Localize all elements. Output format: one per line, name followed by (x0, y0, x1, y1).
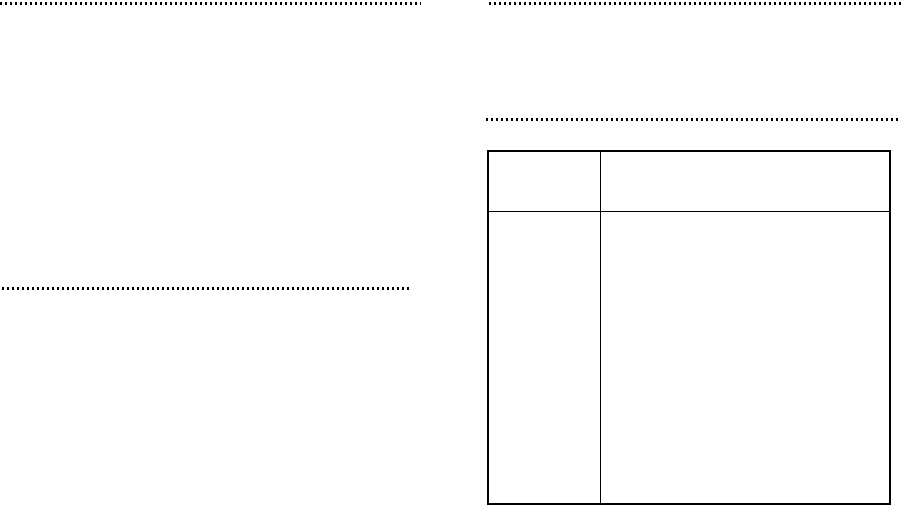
dotted-rule-mid-right (486, 118, 899, 121)
dotted-rule-top-left (0, 2, 421, 5)
dotted-rule-top-right (489, 2, 903, 5)
document-page (0, 0, 903, 511)
table-header-cell-left (489, 152, 601, 212)
table-header-cell-right (601, 152, 889, 212)
empty-table (487, 150, 891, 505)
dotted-rule-mid-left (2, 287, 411, 290)
table-body-cell-right (601, 212, 889, 503)
table-body-cell-left (489, 212, 601, 503)
